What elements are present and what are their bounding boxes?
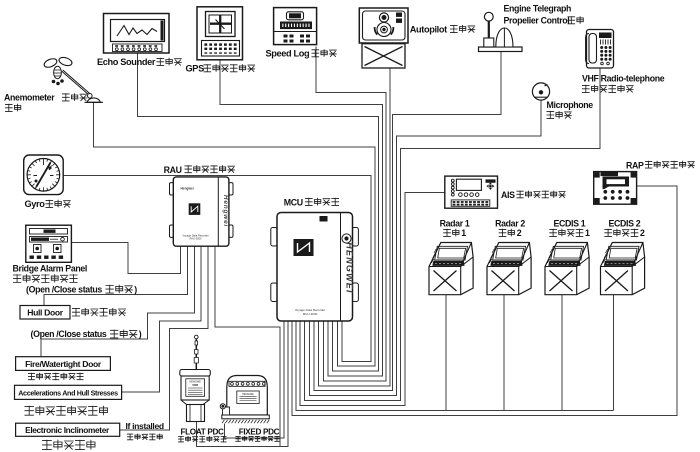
- svg-text:ECDIS 2: ECDIS 2: [609, 218, 641, 228]
- svg-text:If installed: If installed: [126, 421, 164, 431]
- svg-text:RAU-3000: RAU-3000: [189, 237, 202, 241]
- svg-text:AIS: AIS: [501, 190, 515, 200]
- svg-text:FIXED PDC: FIXED PDC: [239, 428, 280, 437]
- svg-text:(Open /Close status: (Open /Close status: [26, 284, 102, 294]
- svg-text:(Open /Close status: (Open /Close status: [31, 329, 107, 339]
- svg-text:FLOAT PDC: FLOAT PDC: [181, 428, 225, 437]
- svg-text:): ): [134, 284, 137, 294]
- svg-text:Microphone: Microphone: [547, 100, 594, 110]
- svg-text:MCU: MCU: [284, 197, 303, 207]
- svg-text:VDR: VDR: [192, 383, 198, 387]
- svg-text:1: 1: [585, 228, 590, 238]
- svg-text:ECDIS 1: ECDIS 1: [554, 218, 586, 228]
- svg-text:Electronic Inclinometer: Electronic Inclinometer: [25, 425, 110, 435]
- svg-text:RAP: RAP: [626, 160, 644, 170]
- svg-text:Bridge Alarm Panel: Bridge Alarm Panel: [13, 263, 88, 273]
- svg-text:RAU: RAU: [164, 165, 182, 175]
- svg-text:MCU-3000: MCU-3000: [303, 312, 318, 316]
- svg-text:Echo Sounder: Echo Sounder: [97, 57, 156, 67]
- svg-text:Gyro: Gyro: [25, 199, 46, 209]
- svg-text:Propelier Control: Propelier Control: [504, 16, 570, 26]
- svg-text:2: 2: [517, 228, 522, 238]
- svg-text:Hull Door: Hull Door: [27, 308, 64, 318]
- svg-text:Hengwei: Hengwei: [222, 195, 229, 227]
- svg-text:Engine Telegraph: Engine Telegraph: [504, 4, 572, 14]
- svg-text:Fire/Watertight Door: Fire/Watertight Door: [25, 359, 102, 369]
- svg-text:2: 2: [640, 228, 645, 238]
- svg-text:): ): [139, 329, 142, 339]
- svg-text:Speed Log: Speed Log: [266, 49, 310, 59]
- svg-text:Accelerations And Hull Stresse: Accelerations And Hull Stresses: [18, 388, 118, 397]
- svg-text:HENGWEI: HENGWEI: [242, 393, 254, 396]
- svg-text:Autopilot: Autopilot: [410, 25, 447, 35]
- svg-text:Radar 1: Radar 1: [440, 218, 470, 228]
- svg-text:VHF Radio-telephone: VHF Radio-telephone: [582, 74, 665, 84]
- svg-text:1: 1: [461, 228, 466, 238]
- svg-text:Anemometer: Anemometer: [4, 93, 55, 103]
- svg-text:GPS: GPS: [186, 64, 205, 74]
- svg-text:Hengwei: Hengwei: [181, 187, 194, 191]
- svg-text:HENGWEI: HENGWEI: [345, 242, 355, 293]
- svg-text:Radar 2: Radar 2: [495, 218, 525, 228]
